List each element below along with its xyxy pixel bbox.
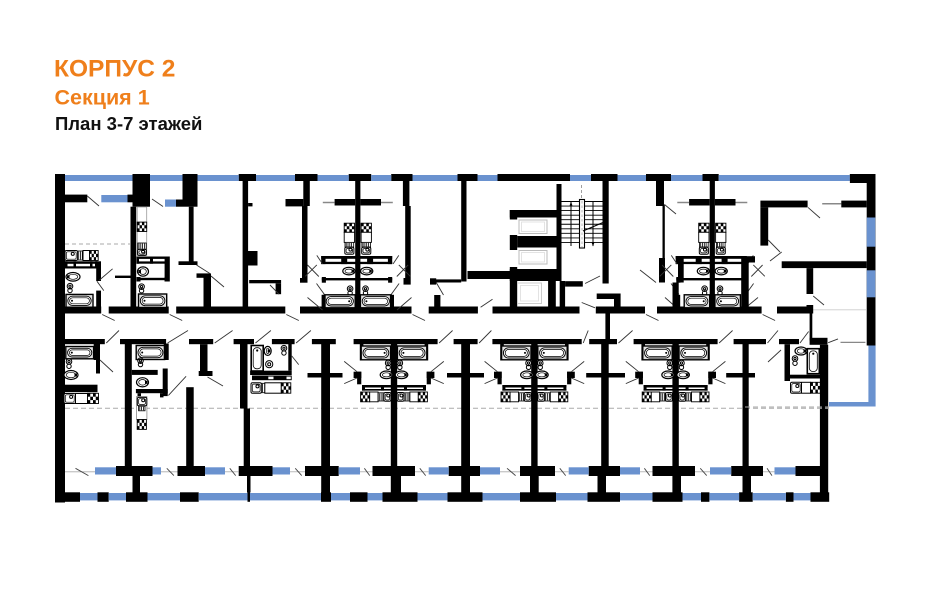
svg-text:КОРПУС 2: КОРПУС 2 xyxy=(54,56,175,83)
svg-text:Секция 1: Секция 1 xyxy=(55,86,150,110)
svg-text:План 3-7 этажей: План 3-7 этажей xyxy=(55,113,202,134)
